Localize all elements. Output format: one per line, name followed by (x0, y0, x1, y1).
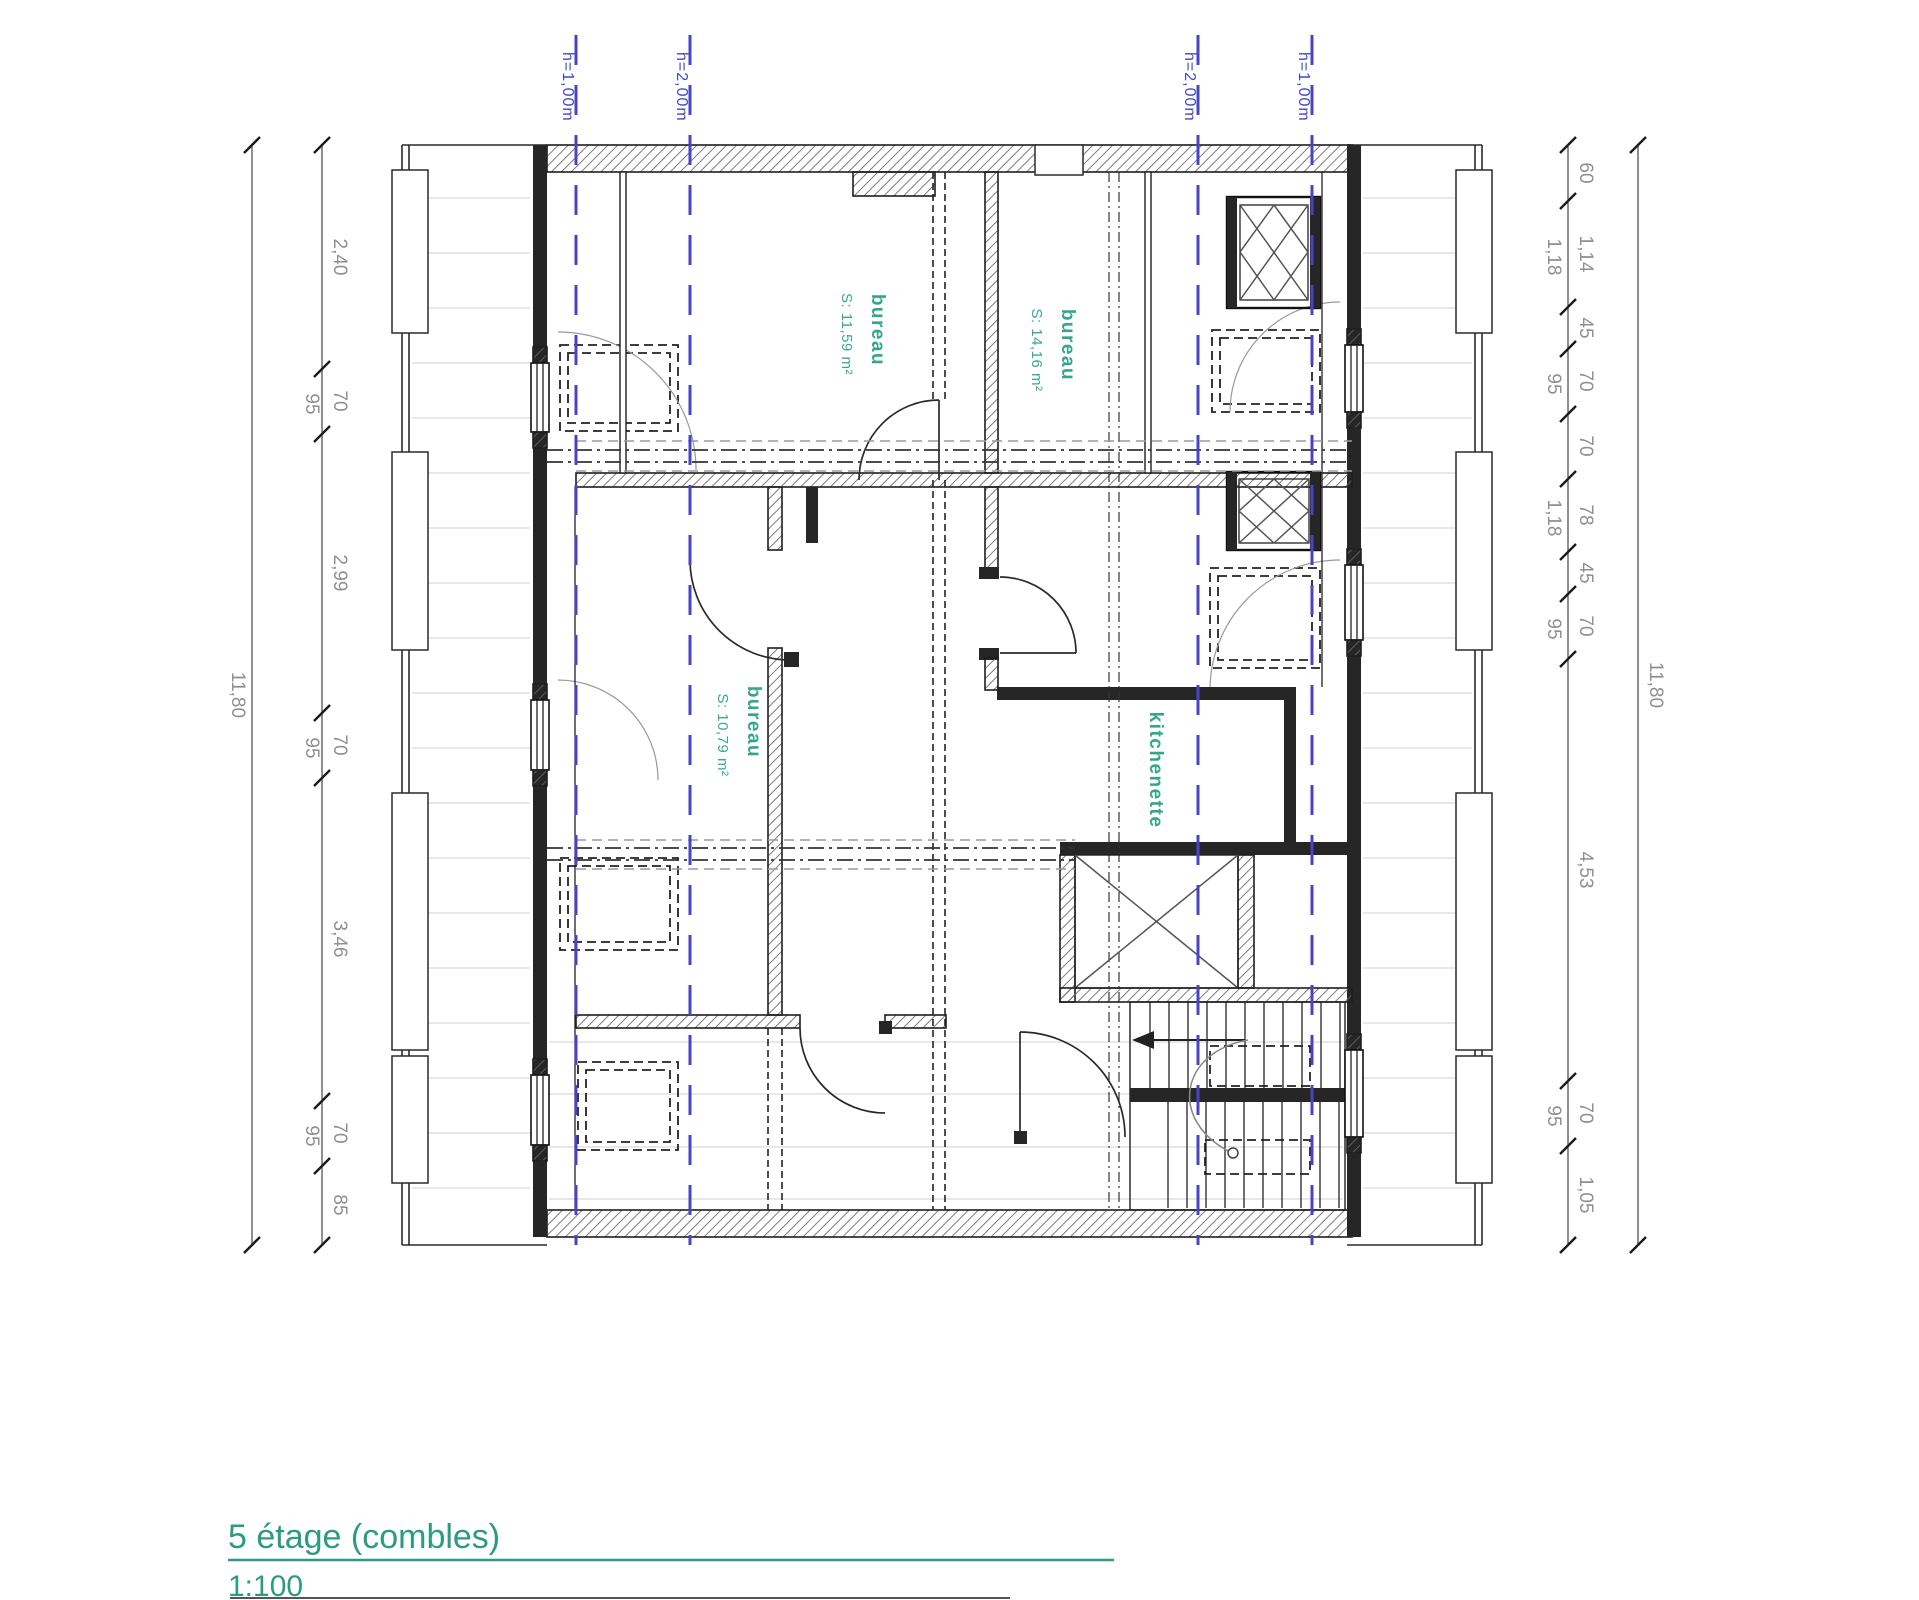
dim-label: 60 (1575, 162, 1596, 183)
wall-stub (806, 487, 818, 543)
dim-label: 70 (329, 734, 350, 755)
dim-label: 70 (329, 1122, 350, 1143)
stair-walk-line-node (1228, 1148, 1238, 1158)
wall-horizontal-lower-a (576, 1015, 800, 1028)
height-line-label: h=2,00m (1181, 52, 1198, 122)
stair-handrail-lower (1205, 1140, 1310, 1174)
height-line-label: h=1,00m (559, 52, 576, 122)
dim-label: 95 (1543, 618, 1564, 639)
partition-top-middle (985, 172, 998, 473)
door (859, 400, 939, 480)
floor-title: 5 étage (combles) (228, 1518, 500, 1556)
height-line-label: h=2,00m (673, 52, 690, 122)
drawing-scale: 1:100 (228, 1570, 303, 1600)
partition-center-lower (768, 648, 782, 1015)
room-name: bureau (1057, 309, 1078, 381)
dim-label: 1,18 (1543, 500, 1564, 537)
window-swing-arcs (558, 302, 1340, 780)
dim-label: 70 (1575, 1102, 1596, 1123)
room-label-bureau-3: bureau S: 10,79 m² (714, 686, 764, 777)
dim-label: 95 (301, 737, 322, 758)
room-name: bureau (867, 294, 888, 366)
kitchenette-walls (997, 687, 1352, 855)
room-name: bureau (743, 686, 764, 758)
dim-label: 95 (1543, 1105, 1564, 1126)
window (531, 1059, 549, 1161)
partition-top-left (620, 172, 626, 473)
door (800, 1021, 892, 1113)
stair-void (1060, 855, 1352, 1002)
room-name: kitchenette (1145, 712, 1166, 829)
room-area: S: 14,16 m² (1028, 308, 1045, 391)
dim-label: 70 (1575, 615, 1596, 636)
dim-label: 95 (1543, 373, 1564, 394)
skylight-upper (1227, 197, 1320, 308)
dim-label: 95 (301, 1125, 322, 1146)
dim-total-left: 11,80 (227, 672, 248, 718)
roof-edge-notches (392, 170, 1492, 1183)
room-label-kitchenette: kitchenette (1145, 712, 1166, 829)
dim-label: 85 (329, 1194, 350, 1215)
interior-walls (575, 172, 1352, 1210)
dimension-chains: 11,80 11,80 2,40 70 95 2,99 70 95 3,46 7… (227, 137, 1666, 1253)
height-line-label: h=1,00m (1295, 52, 1312, 122)
partition-center-upper (768, 487, 782, 550)
room-area: S: 10,79 m² (714, 693, 731, 776)
bottom-wall (547, 1210, 1352, 1237)
room-area: S: 11,59 m² (838, 293, 855, 375)
dim-label: 95 (301, 393, 322, 414)
top-wall (547, 145, 1352, 172)
stair-handrail-upper (1210, 1046, 1310, 1086)
stud-wall-dashed (933, 172, 945, 1210)
window (531, 684, 549, 786)
dim-label: 4,53 (1575, 852, 1596, 889)
dim-label: 70 (1575, 370, 1596, 391)
partition-top-right (1145, 172, 1151, 473)
attic-height-lines: h=1,00m h=2,00m h=2,00m h=1,00m (559, 35, 1312, 1245)
top-wall-jog (853, 172, 935, 196)
wall-horizontal-lower-b (885, 1015, 946, 1028)
roof-band-left (412, 198, 530, 1188)
title-block: 5 étage (combles) 1:100 (228, 1518, 1114, 1600)
dim-label: 1,18 (1543, 239, 1564, 276)
dim-label: 1,14 (1575, 236, 1596, 273)
dim-label: 2,40 (329, 239, 350, 276)
dim-label: 45 (1575, 562, 1596, 583)
dim-label: 70 (329, 390, 350, 411)
partition-mid-upper (985, 487, 998, 573)
window (531, 347, 549, 448)
window (1345, 1034, 1363, 1153)
dim-label: 3,46 (329, 921, 350, 958)
partition-mid-stub (985, 658, 998, 690)
dim-total-right: 11,80 (1645, 662, 1666, 708)
window (1345, 329, 1363, 428)
dim-label: 70 (1575, 435, 1596, 456)
doors (690, 400, 1125, 1144)
wall-above-stairs (1060, 988, 1352, 1002)
window (1345, 549, 1363, 656)
dim-label: 1,05 (1575, 1177, 1596, 1214)
room-label-bureau-1: bureau S: 11,59 m² (838, 293, 888, 375)
door (1014, 1032, 1125, 1144)
dim-label: 45 (1575, 317, 1596, 338)
roof-band-edges (402, 145, 1482, 1245)
floor-plan-page: h=1,00m h=2,00m h=2,00m h=1,00m bureau S… (0, 0, 1919, 1600)
dim-label: 2,99 (329, 555, 350, 592)
floor-plan-drawing: h=1,00m h=2,00m h=2,00m h=1,00m bureau S… (0, 0, 1919, 1600)
room-label-bureau-2: bureau S: 14,16 m² (1028, 308, 1078, 391)
roof-slope-lines-bottom (549, 1042, 1343, 1199)
door (1000, 577, 1076, 653)
dim-label: 78 (1575, 504, 1596, 525)
top-wall-notch (1035, 145, 1083, 175)
